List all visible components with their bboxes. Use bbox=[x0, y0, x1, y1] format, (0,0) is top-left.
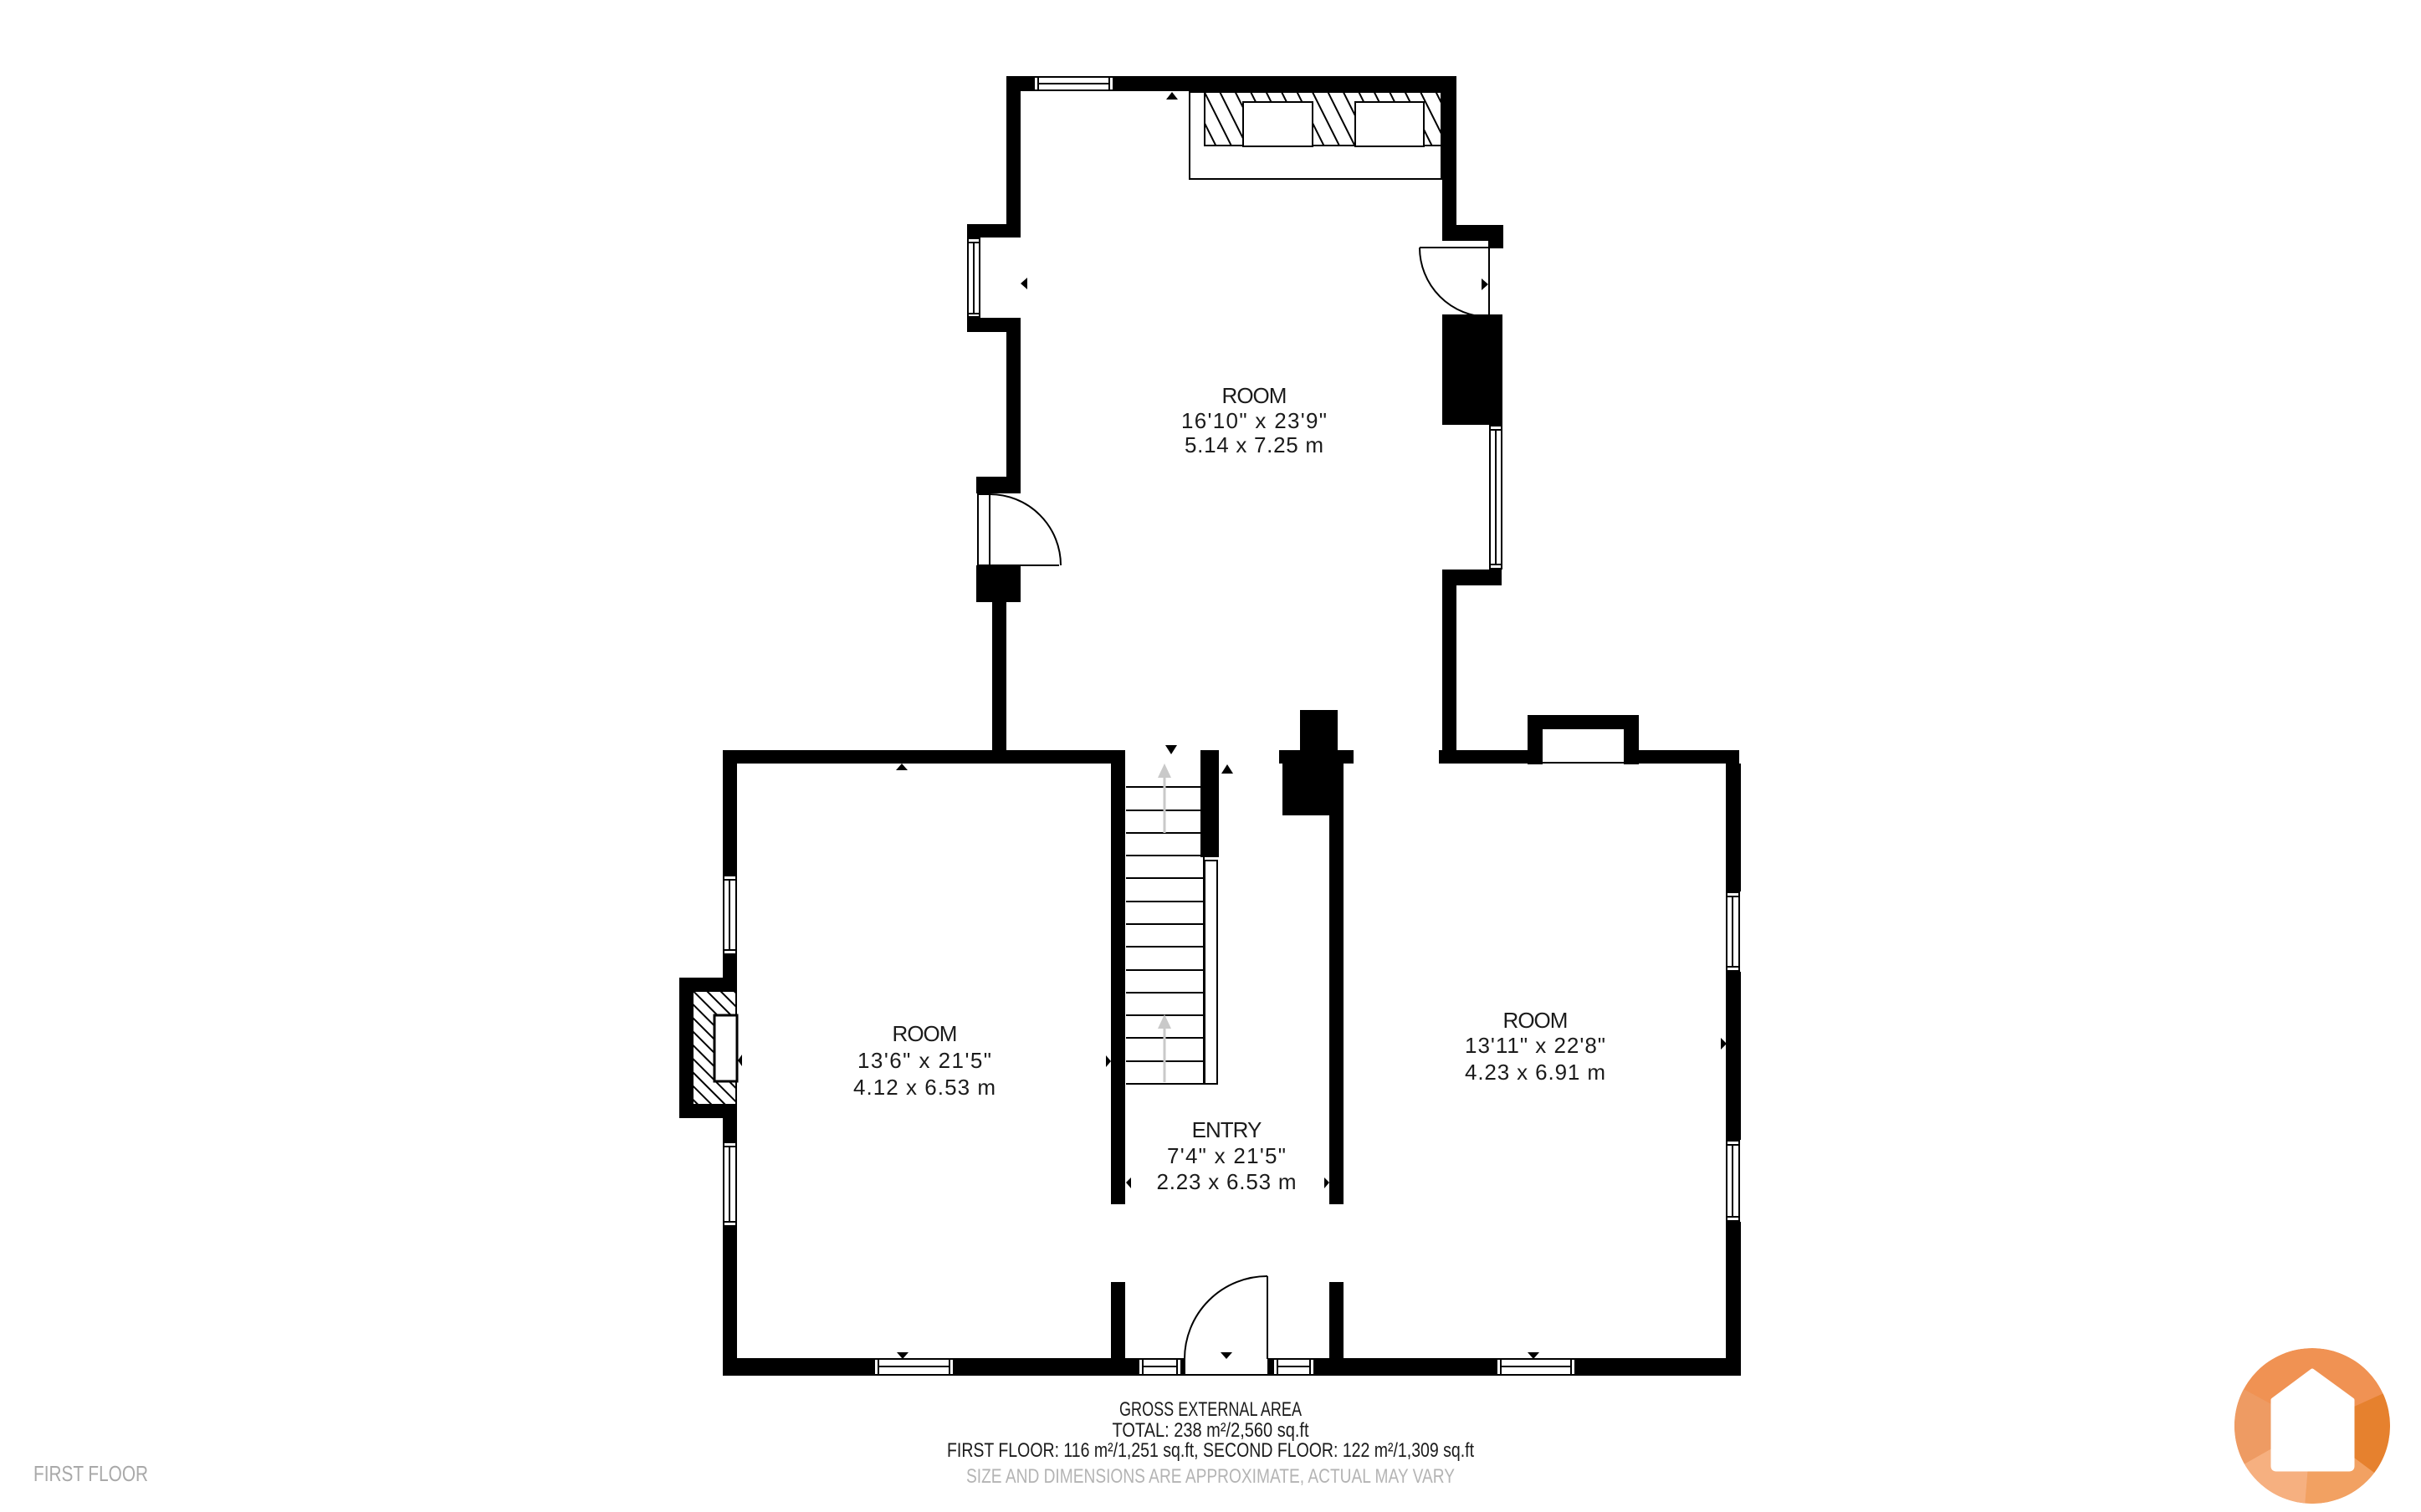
svg-text:ROOM: ROOM bbox=[893, 1021, 957, 1046]
svg-text:ENTRY: ENTRY bbox=[1192, 1117, 1262, 1142]
svg-text:SIZE AND DIMENSIONS ARE APPROX: SIZE AND DIMENSIONS ARE APPROXIMATE, ACT… bbox=[966, 1465, 1455, 1488]
svg-text:5.14 x 7.25 m: 5.14 x 7.25 m bbox=[1185, 432, 1323, 457]
svg-text:FIRST FLOOR: 116 m²/1,251 sq.f: FIRST FLOOR: 116 m²/1,251 sq.ft, SECOND … bbox=[947, 1439, 1474, 1462]
svg-text:FIRST FLOOR: FIRST FLOOR bbox=[33, 1461, 148, 1486]
svg-text:ROOM: ROOM bbox=[1222, 383, 1287, 408]
svg-text:4.23 x 6.91 m: 4.23 x 6.91 m bbox=[1465, 1060, 1605, 1085]
svg-text:7'4" x 21'5": 7'4" x 21'5" bbox=[1167, 1143, 1286, 1168]
svg-text:13'6" x 21'5": 13'6" x 21'5" bbox=[857, 1048, 991, 1073]
svg-text:13'11" x 22'8": 13'11" x 22'8" bbox=[1465, 1033, 1605, 1058]
svg-text:4.12 x 6.53 m: 4.12 x 6.53 m bbox=[853, 1075, 996, 1100]
svg-text:2.23 x 6.53 m: 2.23 x 6.53 m bbox=[1157, 1169, 1297, 1194]
svg-text:ROOM: ROOM bbox=[1503, 1008, 1568, 1033]
svg-text:GROSS EXTERNAL AREA: GROSS EXTERNAL AREA bbox=[1119, 1398, 1302, 1421]
svg-text:TOTAL: 238 m²/2,560 sq.ft: TOTAL: 238 m²/2,560 sq.ft bbox=[1113, 1419, 1309, 1442]
